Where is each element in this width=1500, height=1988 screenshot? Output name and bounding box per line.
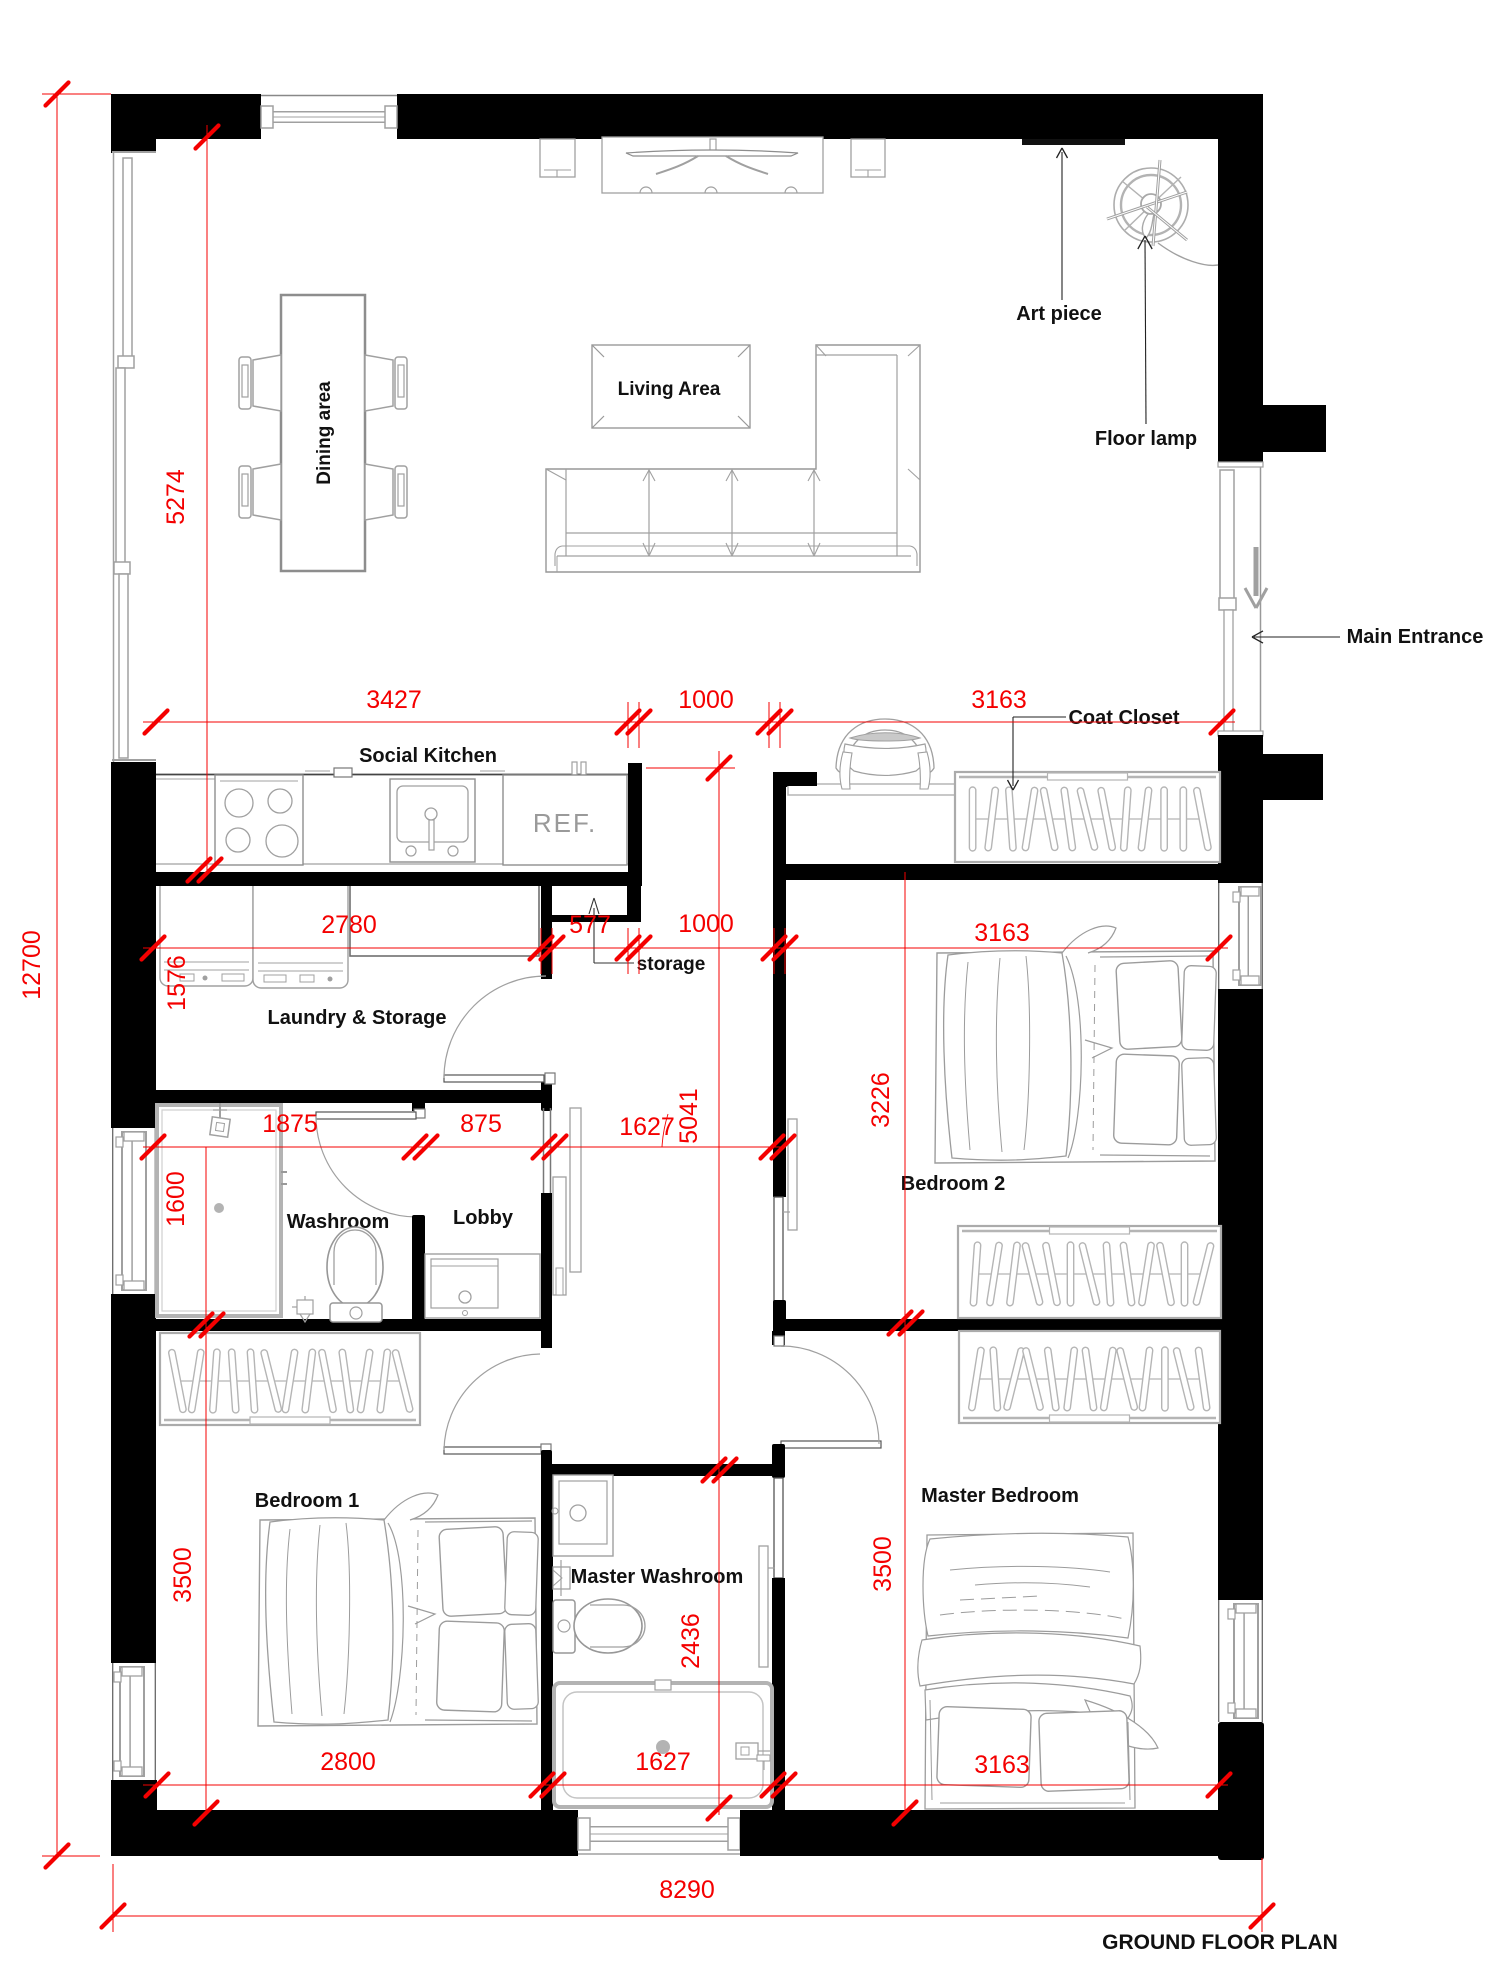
svg-text:Coat Closet: Coat Closet (1068, 707, 1179, 729)
svg-text:Bedroom 1: Bedroom 1 (255, 1490, 359, 1512)
svg-text:2436: 2436 (677, 1613, 705, 1669)
svg-text:Dining area: Dining area (314, 381, 335, 485)
svg-text:Social Kitchen: Social Kitchen (359, 745, 497, 767)
svg-text:storage: storage (637, 954, 706, 975)
svg-text:8290: 8290 (659, 1876, 715, 1904)
svg-text:5041: 5041 (675, 1088, 703, 1144)
svg-text:12700: 12700 (18, 930, 46, 1000)
svg-text:3163: 3163 (974, 1751, 1030, 1779)
svg-text:REF.: REF. (533, 808, 597, 838)
svg-text:3163: 3163 (974, 919, 1030, 947)
svg-text:1000: 1000 (678, 910, 734, 938)
svg-text:GROUND FLOOR PLAN: GROUND FLOOR PLAN (1102, 1931, 1338, 1954)
svg-text:3226: 3226 (867, 1072, 895, 1128)
svg-text:Floor lamp: Floor lamp (1095, 428, 1197, 450)
svg-text:Laundry & Storage: Laundry & Storage (268, 1007, 447, 1029)
svg-text:3500: 3500 (169, 1547, 197, 1603)
svg-text:Art piece: Art piece (1016, 303, 1102, 325)
svg-text:Master Washroom: Master Washroom (571, 1566, 744, 1588)
svg-text:Main Entrance: Main Entrance (1347, 626, 1484, 648)
svg-text:3500: 3500 (869, 1536, 897, 1592)
svg-text:5274: 5274 (162, 469, 190, 525)
svg-text:1576: 1576 (163, 955, 191, 1011)
svg-text:Master Bedroom: Master Bedroom (921, 1485, 1079, 1507)
svg-text:875: 875 (460, 1110, 502, 1138)
svg-text:1875: 1875 (262, 1110, 318, 1138)
svg-text:1627: 1627 (619, 1113, 675, 1141)
svg-text:Lobby: Lobby (453, 1207, 514, 1229)
svg-text:2780: 2780 (321, 911, 377, 939)
svg-text:1627: 1627 (635, 1748, 691, 1776)
svg-text:Washroom: Washroom (287, 1211, 390, 1233)
svg-text:3163: 3163 (971, 686, 1027, 714)
svg-text:Bedroom 2: Bedroom 2 (901, 1173, 1005, 1195)
svg-text:2800: 2800 (320, 1748, 376, 1776)
svg-text:Living Area: Living Area (618, 379, 721, 400)
svg-text:1600: 1600 (162, 1171, 190, 1227)
svg-text:1000: 1000 (678, 686, 734, 714)
svg-text:3427: 3427 (366, 686, 422, 714)
svg-text:577: 577 (569, 911, 611, 939)
